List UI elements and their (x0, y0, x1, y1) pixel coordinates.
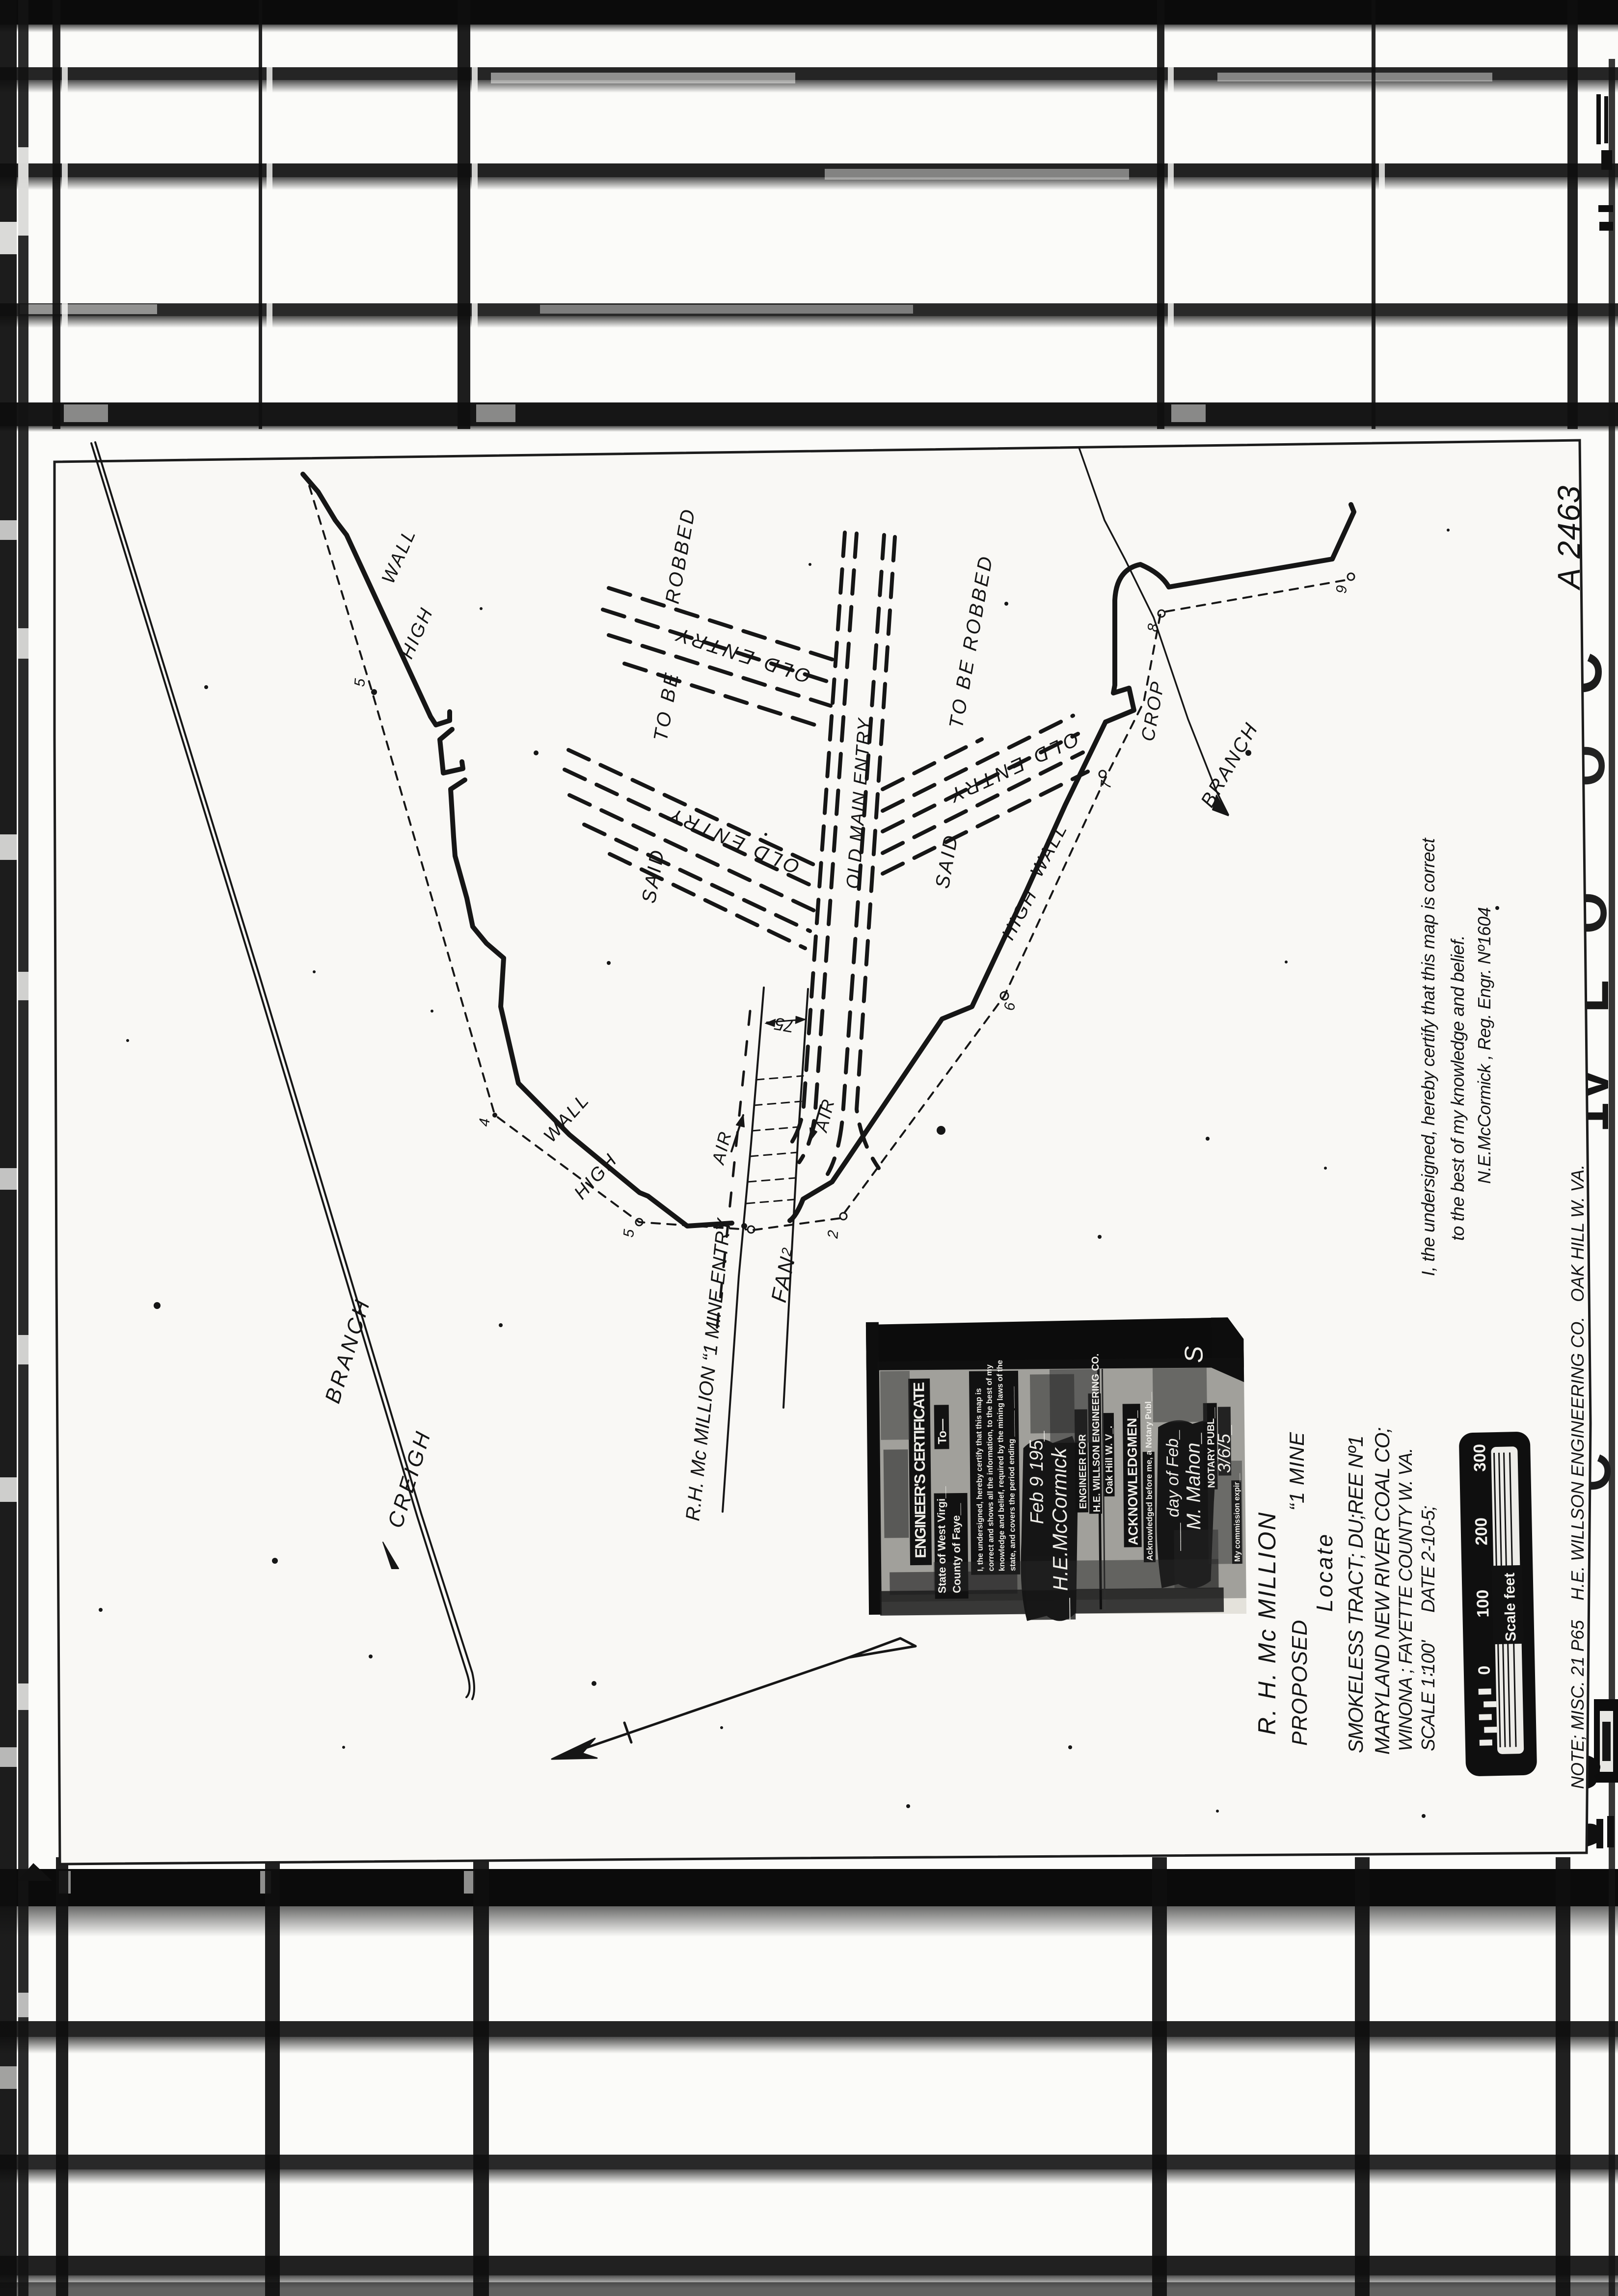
svg-text:9: 9 (1333, 585, 1350, 594)
svg-text:“1 MINE: “1 MINE (1285, 1432, 1308, 1511)
svg-text:100: 100 (1473, 1589, 1492, 1618)
svg-text:300: 300 (1470, 1444, 1489, 1472)
svg-text:Scale feet: Scale feet (1502, 1573, 1519, 1642)
svg-text:S: S (1180, 1346, 1208, 1363)
svg-text:8: 8 (1145, 623, 1161, 633)
svg-text:A 2463: A 2463 (1551, 485, 1587, 591)
svg-text:Feb 9 195_: Feb 9 195_ (1026, 1430, 1048, 1524)
svg-text:to the best of my knowledge an: to the best of my knowledge and belief. (1448, 935, 1468, 1241)
svg-text:SCALE 1∶100' DATE 2-10-: SCALE 1∶100' DATE 2-10-5; (1418, 1506, 1439, 1751)
svg-text:3/6/5_: 3/6/5_ (1213, 1424, 1234, 1473)
svg-text:H.E. WILLSON ENGINEERING CΟ.: H.E. WILLSON ENGINEERING CΟ. (1090, 1354, 1103, 1513)
svg-text:Oak Hill W. V_.: Oak Hill W. V_. (1104, 1426, 1115, 1494)
svg-text:ENGINEER FOR: ENGINEER FOR (1077, 1434, 1089, 1509)
svg-text:200: 200 (1472, 1518, 1491, 1546)
svg-text:To—: To— (936, 1419, 949, 1444)
svg-text:State of West Virgi__: State of West Virgi__ (935, 1486, 948, 1594)
svg-text:0: 0 (1475, 1665, 1494, 1675)
svg-text:Locate: Locate (1312, 1532, 1337, 1612)
svg-text:County of Faye__: County of Faye__ (950, 1503, 963, 1593)
svg-text:My commission expir__: My commission expir__ (1233, 1472, 1242, 1562)
svg-text:R. H. M⁣c MILLION: R. H. M⁣c MILLION (1253, 1511, 1281, 1735)
svg-text:PROPOSED: PROPOSED (1288, 1620, 1312, 1746)
svg-text:NOTE; MISC. 21 P65 H.E. WIL: NOTE; MISC. 21 P65 H.E. WILLSON ENGINEER… (1567, 1165, 1588, 1789)
svg-text:___ day of Feb_: ___ day of Feb_ (1163, 1429, 1183, 1551)
svg-text:2: 2 (825, 1229, 841, 1240)
svg-text:5: 5 (351, 678, 368, 688)
svg-text:6: 6 (1001, 1002, 1018, 1012)
svg-text:5: 5 (620, 1228, 637, 1238)
svg-text:I, the undersigned, hereby cer: I, the undersigned, hereby certify that … (1418, 837, 1438, 1276)
svg-text:Acknowledged before me, a Nota: Acknowledged before me, a Notary Publ__ (1143, 1392, 1155, 1561)
svg-text:MARYLAND NEW RIVER COAL CO;: MARYLAND NEW RIVER COAL CO; (1371, 1428, 1394, 1755)
svg-text:__ H.E.M⁣cCοrmιck: __ H.E.M⁣cCοrmιck (1048, 1447, 1073, 1622)
svg-text:ENGINEER'S CERTIFICATE: ENGINEER'S CERTIFICATE (910, 1382, 929, 1558)
svg-text:SMOKELESS TRACT; DU;REE Nº1: SMOKELESS TRACT; DU;REE Nº1 (1344, 1436, 1367, 1753)
svg-text:ACKNOWLEDGMEN_: ACKNOWLEDGMEN_ (1125, 1410, 1141, 1546)
svg-text:M. Mahοn_: M. Mahοn_ (1182, 1432, 1205, 1530)
svg-text:N.E.M⁣cCormick , Reg. Engr. Nº: N.E.M⁣cCormick , Reg. Engr. Nº1604 (1474, 908, 1494, 1184)
svg-text:WINONA ; FAYETTE COUNTY W.: WINONA ; FAYETTE COUNTY W. VA. (1396, 1448, 1416, 1751)
svg-text:4: 4 (476, 1118, 493, 1127)
svg-text:75: 75 (773, 1014, 796, 1037)
